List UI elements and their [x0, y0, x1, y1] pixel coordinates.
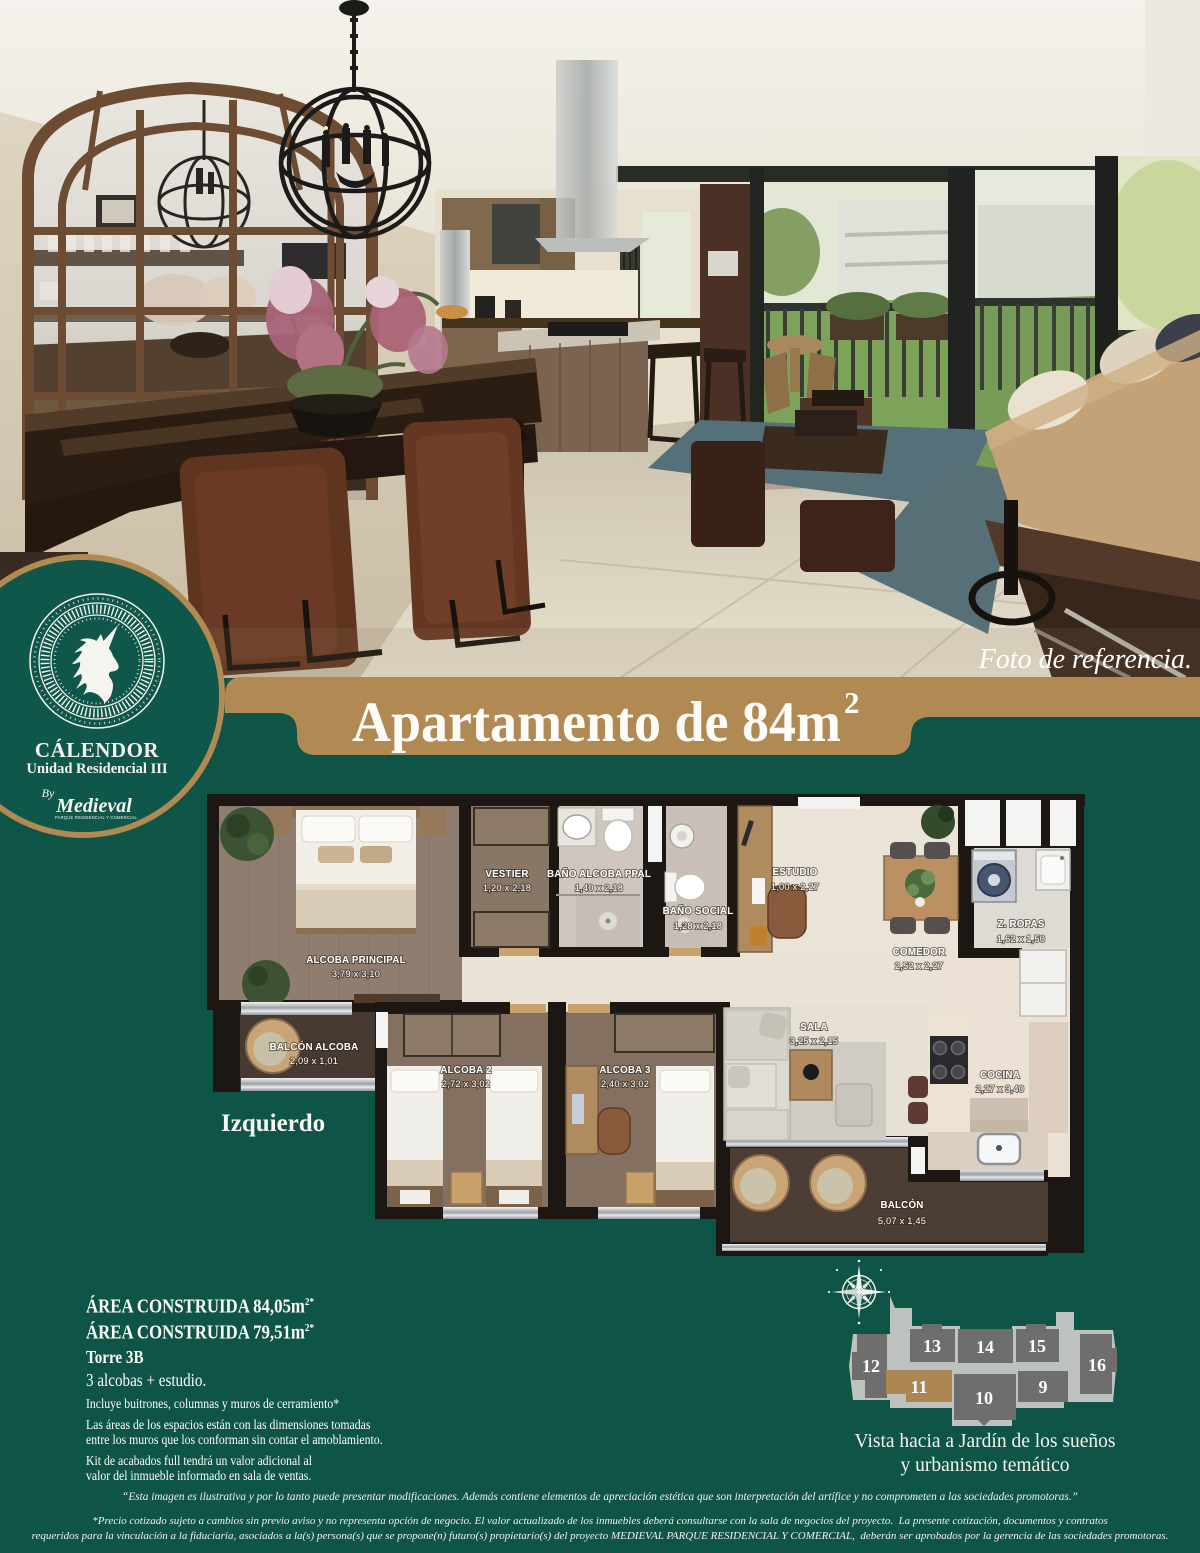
- svg-text:Z. ROPAS: Z. ROPAS: [997, 919, 1044, 930]
- svg-text:1,20 x 2,18: 1,20 x 2,18: [483, 883, 531, 893]
- svg-text:2,40 x 3,02: 2,40 x 3,02: [601, 1079, 649, 1089]
- svg-text:2,52 x 2,27: 2,52 x 2,27: [895, 961, 943, 971]
- svg-text:12: 12: [862, 1356, 880, 1376]
- svg-text:Vista hacia a Jardín de los su: Vista hacia a Jardín de los sueños: [855, 1431, 1116, 1452]
- svg-text:COMEDOR: COMEDOR: [893, 947, 946, 958]
- svg-text:SALA: SALA: [800, 1022, 827, 1033]
- svg-text:2,72 x 3,02: 2,72 x 3,02: [442, 1079, 490, 1089]
- svg-text:Unidad Residencial III: Unidad Residencial III: [26, 761, 167, 777]
- svg-text:CÁLENDOR: CÁLENDOR: [35, 738, 160, 762]
- svg-text:1,62 x 1,50: 1,62 x 1,50: [997, 934, 1045, 944]
- svg-text:2,09 x 1,01: 2,09 x 1,01: [290, 1056, 338, 1066]
- svg-text:15: 15: [1028, 1336, 1046, 1356]
- svg-text:11: 11: [910, 1377, 927, 1397]
- svg-text:5,07 x 1,45: 5,07 x 1,45: [878, 1216, 926, 1226]
- svg-text:Foto de referencia.: Foto de referencia.: [978, 644, 1192, 675]
- svg-text:16: 16: [1088, 1355, 1106, 1375]
- svg-text:PARQUE RESIDENCIAL Y COMERCIAL: PARQUE RESIDENCIAL Y COMERCIAL: [55, 815, 138, 820]
- svg-text:Medieval: Medieval: [55, 795, 132, 817]
- svg-text:y urbanismo temático: y urbanismo temático: [901, 1455, 1070, 1476]
- svg-text:Izquierdo: Izquierdo: [221, 1110, 325, 1137]
- svg-text:1,40 x 2,18: 1,40 x 2,18: [575, 883, 623, 893]
- svg-text:9: 9: [1039, 1377, 1048, 1397]
- svg-text:Apartamento de 84m: Apartamento de 84m: [352, 691, 841, 754]
- svg-text:COCINA: COCINA: [980, 1070, 1020, 1081]
- svg-text:1,00 x 2,27: 1,00 x 2,27: [771, 882, 819, 892]
- svg-text:10: 10: [975, 1388, 993, 1408]
- svg-text:3,25 x 2,15: 3,25 x 2,15: [790, 1036, 838, 1046]
- svg-text:13: 13: [923, 1336, 941, 1356]
- svg-text:1,28 x 2,18: 1,28 x 2,18: [674, 921, 722, 931]
- svg-text:14: 14: [976, 1337, 994, 1357]
- svg-text:ALCOBA 2: ALCOBA 2: [440, 1065, 492, 1076]
- svg-text:2: 2: [844, 685, 860, 720]
- svg-text:BALCÓN ALCOBA: BALCÓN ALCOBA: [270, 1041, 359, 1053]
- svg-text:VESTIER: VESTIER: [485, 869, 528, 880]
- svg-text:ALCOBA PRINCIPAL: ALCOBA PRINCIPAL: [306, 955, 406, 966]
- svg-text:By: By: [42, 786, 55, 800]
- svg-text:BAÑO ALCOBA PPAL: BAÑO ALCOBA PPAL: [547, 869, 651, 880]
- svg-text:BALCÓN: BALCÓN: [880, 1199, 923, 1211]
- svg-text:ALCOBA 3: ALCOBA 3: [599, 1065, 651, 1076]
- svg-text:2,27 x 3,40: 2,27 x 3,40: [976, 1084, 1024, 1094]
- svg-text:ESTUDIO: ESTUDIO: [773, 867, 818, 878]
- svg-text:3,79 x 3,10: 3,79 x 3,10: [332, 969, 380, 979]
- svg-text:BAÑO SOCIAL: BAÑO SOCIAL: [663, 906, 734, 917]
